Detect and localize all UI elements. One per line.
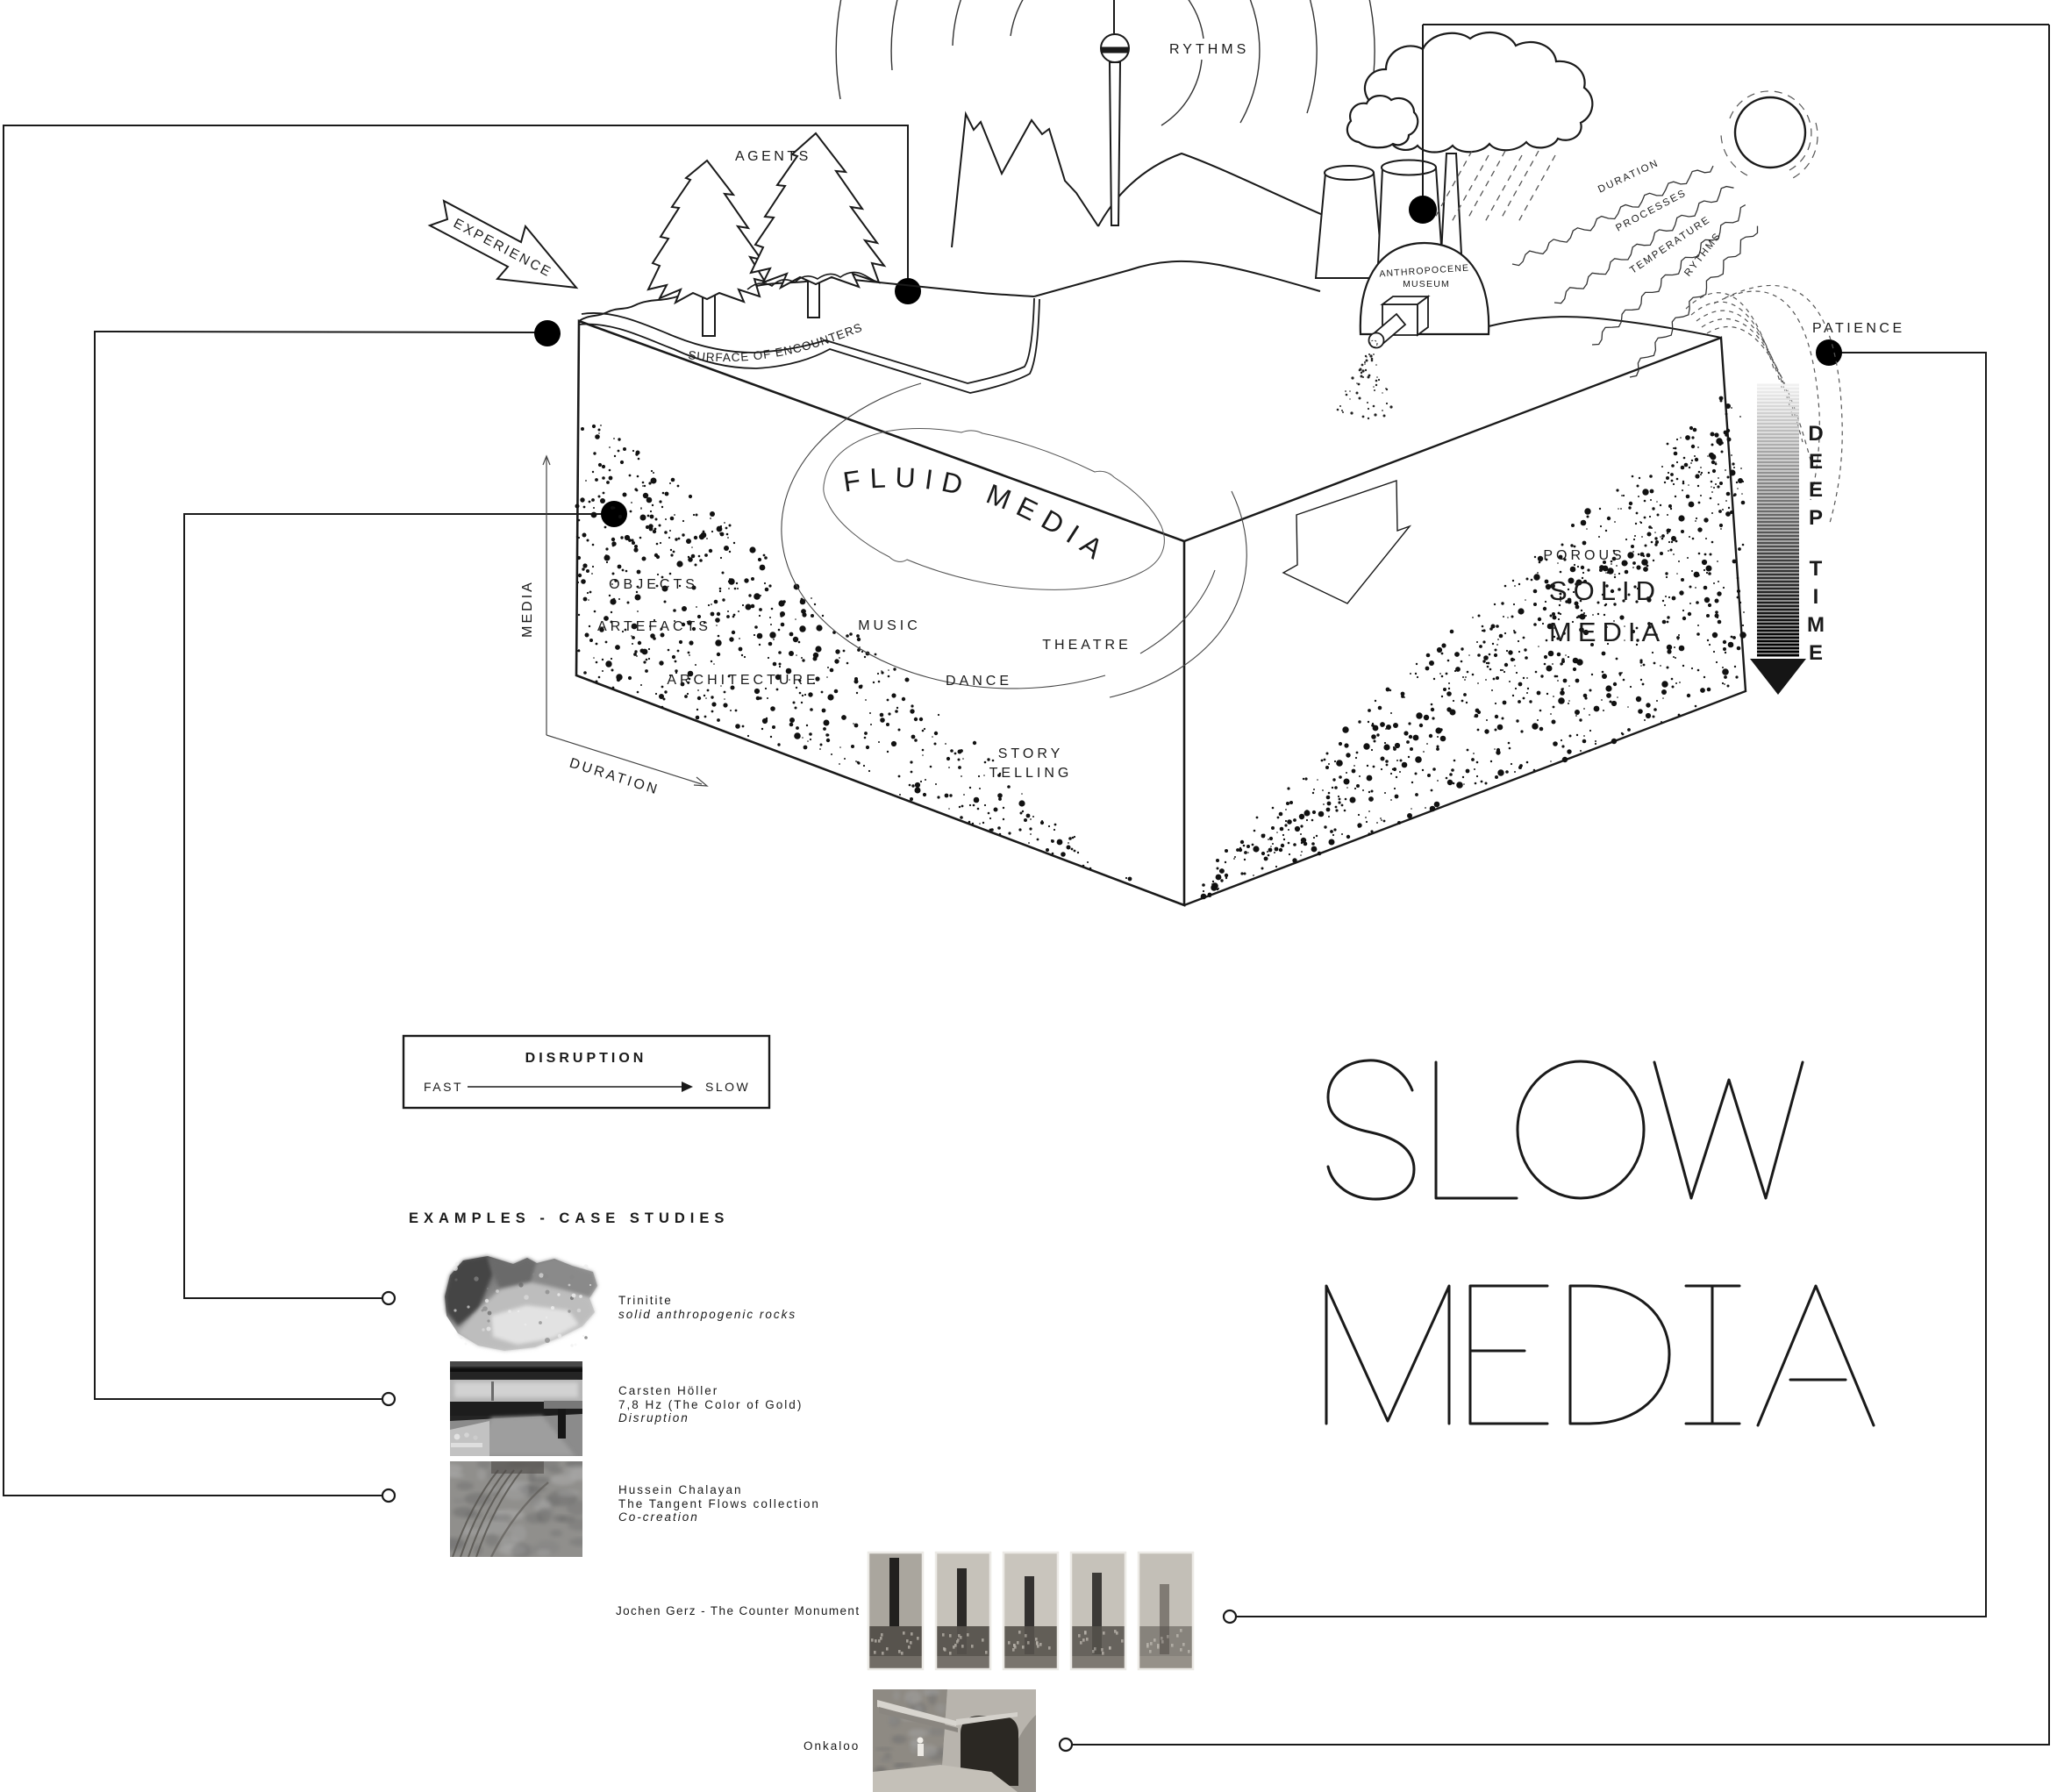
svg-text:E: E (1809, 450, 1823, 474)
svg-text:D: D (1808, 422, 1823, 446)
svg-text:Co-creation: Co-creation (618, 1510, 699, 1524)
svg-text:solid anthropogenic rocks: solid anthropogenic rocks (618, 1308, 796, 1321)
svg-text:P: P (1809, 506, 1823, 530)
svg-text:RYTHMS: RYTHMS (1169, 42, 1249, 57)
svg-text:7,8 Hz (The Color of Gold): 7,8 Hz (The Color of Gold) (618, 1398, 803, 1411)
svg-text:DISRUPTION: DISRUPTION (525, 1051, 647, 1066)
svg-text:STORY: STORY (998, 746, 1064, 761)
svg-text:I: I (1813, 585, 1819, 609)
svg-text:DANCE: DANCE (946, 674, 1012, 689)
svg-text:Hussein Chalayan: Hussein Chalayan (618, 1483, 743, 1496)
svg-text:SLOW: SLOW (705, 1080, 750, 1094)
svg-text:THEATRE: THEATRE (1042, 638, 1131, 653)
svg-text:FAST: FAST (424, 1080, 463, 1094)
svg-text:Disruption: Disruption (618, 1411, 689, 1424)
svg-text:T: T (1810, 557, 1823, 581)
svg-text:MUSEUM: MUSEUM (1403, 279, 1450, 289)
svg-text:MUSIC: MUSIC (858, 618, 921, 633)
svg-text:MEDIA: MEDIA (1549, 617, 1666, 647)
svg-text:POROUS: POROUS (1543, 548, 1625, 563)
svg-text:ARTEFACTS: ARTEFACTS (597, 619, 711, 634)
svg-text:OBJECTS: OBJECTS (609, 577, 698, 592)
svg-text:EXAMPLES - CASE STUDIES: EXAMPLES - CASE STUDIES (409, 1210, 729, 1226)
svg-text:SOLID: SOLID (1549, 575, 1661, 606)
svg-text:E: E (1809, 641, 1823, 665)
svg-text:MEDIA: MEDIA (520, 580, 535, 638)
svg-text:E: E (1809, 478, 1823, 502)
svg-text:ARCHITECTURE: ARCHITECTURE (667, 673, 818, 688)
svg-text:Carsten Höller: Carsten Höller (618, 1384, 718, 1397)
svg-text:Onkaloo: Onkaloo (804, 1739, 860, 1753)
svg-text:Jochen Gerz - The Counter Monu: Jochen Gerz - The Counter Monument (616, 1604, 860, 1617)
svg-text:The Tangent Flows collection: The Tangent Flows collection (618, 1497, 820, 1510)
svg-text:AGENTS: AGENTS (735, 149, 811, 164)
svg-text:Trinitite: Trinitite (618, 1294, 673, 1307)
svg-text:TELLING: TELLING (989, 766, 1073, 781)
svg-text:M: M (1807, 613, 1825, 637)
